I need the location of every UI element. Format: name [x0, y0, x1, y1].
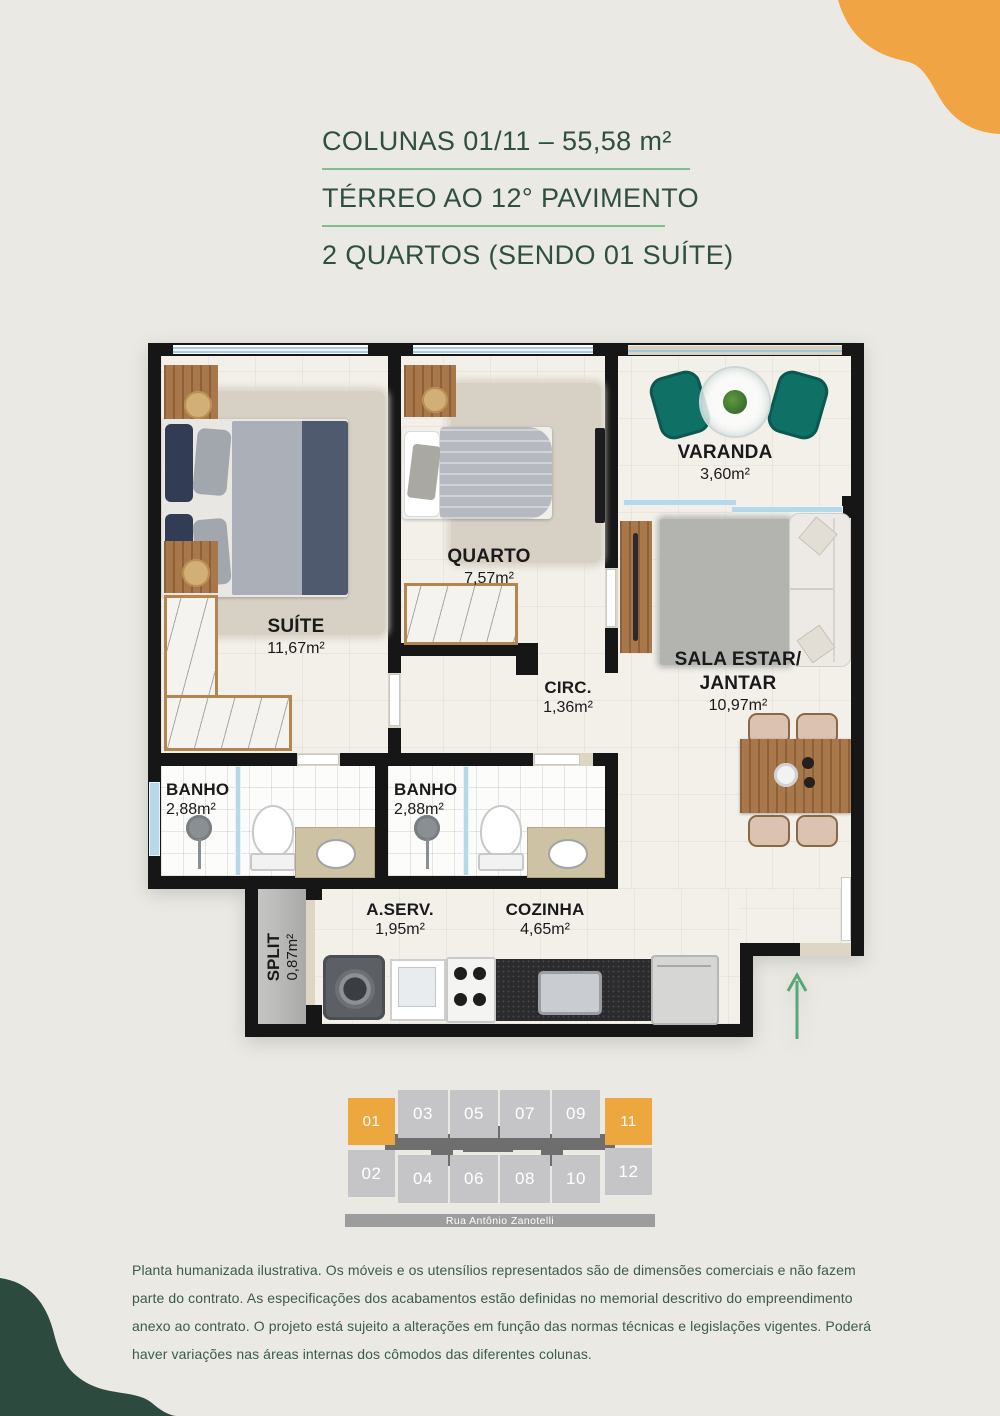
wall-entry-top [740, 943, 800, 956]
varanda-name: VARANDA [665, 441, 785, 465]
quarto-area: 7,57m² [429, 569, 549, 589]
kitchen-counter [496, 959, 652, 1021]
banho1-name: BANHO [166, 779, 262, 800]
suite-decor-tray-bottom [182, 559, 210, 587]
wall-suite-quarto [388, 356, 401, 673]
unit-05: 05 [450, 1090, 498, 1138]
door-leaf-banho2 [535, 755, 579, 764]
quarto-tv [595, 428, 605, 523]
unit-07-label: 07 [515, 1104, 535, 1124]
label-banho1: BANHO 2,88m² [166, 779, 262, 820]
wall-banho2-top-a [401, 753, 533, 766]
label-split: SPLIT 0,87m² [264, 912, 302, 1002]
flyer-page: { "colors": { "background": "#eae9e3", "… [0, 0, 1000, 1416]
unit-04-label: 04 [413, 1169, 433, 1189]
table-cup-1 [802, 757, 814, 769]
sala-sofa [789, 513, 851, 667]
banho2-sink [548, 839, 588, 869]
wall-quarto-right-top [605, 356, 618, 568]
entry-arrow-icon [785, 971, 809, 1041]
floorplan: SUÍTE 11,67m² QUARTO 7,57m² VARANDA 3,60… [148, 343, 864, 1037]
unit-12-label: 12 [619, 1162, 639, 1182]
sala-name-line2: JANTAR [668, 672, 808, 696]
wall-step-left [245, 889, 258, 1037]
label-aserv: A.SERV. 1,95m² [340, 899, 460, 940]
sala-name-line1: SALA ESTAR/ [668, 648, 808, 672]
unit-10: 10 [552, 1155, 600, 1203]
suite-decor-tray-top [184, 391, 212, 419]
split-area: 0,87m² [284, 912, 302, 1002]
street-bar: Rua Antônio Zanotelli [345, 1214, 655, 1227]
unit-07: 07 [500, 1090, 550, 1138]
sofa-pillow-top [798, 516, 837, 555]
unit-11: 11 [605, 1098, 652, 1145]
suite-pillow-navy-1 [165, 424, 193, 502]
sliding-door-leaf-right [732, 507, 842, 512]
window-suite [173, 345, 368, 354]
door-leaf-suite [390, 675, 399, 725]
quarto-name: QUARTO [429, 545, 549, 569]
door-leaf-quarto [607, 570, 615, 626]
cozinha-area: 4,65m² [485, 920, 605, 940]
varanda-rail [628, 345, 842, 355]
unit-03-label: 03 [413, 1104, 433, 1124]
dining-table [740, 739, 851, 813]
unit-10-label: 10 [566, 1169, 586, 1189]
unit-09: 09 [552, 1090, 600, 1138]
unit-06-label: 06 [464, 1169, 484, 1189]
split-name: SPLIT [264, 912, 284, 1002]
label-sala: SALA ESTAR/ JANTAR 10,97m² [668, 648, 808, 716]
aserv-name: A.SERV. [340, 899, 460, 920]
wall-split-tab-top [306, 876, 322, 900]
title-columns: COLUNAS 01/11 – 55,58 m² [322, 126, 690, 170]
banho2-toilet-tank [478, 853, 524, 871]
fridge-door-line [657, 965, 711, 967]
unit-06: 06 [450, 1155, 498, 1203]
label-varanda: VARANDA 3,60m² [665, 441, 785, 485]
wall-circ-corner [516, 643, 538, 675]
laundry-tank [390, 959, 446, 1021]
suite-blanket-dark [302, 421, 348, 595]
fridge [651, 955, 719, 1025]
table-plate [774, 763, 798, 787]
banho2-shower-stem [426, 839, 429, 869]
unit-01-label: 01 [363, 1113, 381, 1130]
sofa-back-line [833, 518, 835, 662]
label-cozinha: COZINHA 4,65m² [485, 899, 605, 940]
title-rooms: 2 QUARTOS (SENDO 01 SUÍTE) [322, 240, 692, 282]
quarto-decor-tray [422, 387, 448, 413]
legal-disclaimer: Planta humanizada ilustrativa. Os móveis… [132, 1256, 890, 1368]
dining-chair-4 [796, 815, 838, 847]
unit-08-label: 08 [515, 1169, 535, 1189]
wall-entry-stub [740, 943, 753, 1037]
varanda-plant [723, 390, 747, 414]
label-quarto: QUARTO 7,57m² [429, 545, 549, 589]
unit-04: 04 [398, 1155, 448, 1203]
unit-02: 02 [348, 1150, 395, 1197]
laundry-tank-basin [398, 967, 436, 1007]
wall-quarto-right-low [605, 628, 618, 673]
table-cup-2 [804, 777, 815, 788]
unit-03: 03 [398, 1090, 448, 1138]
unit-12: 12 [605, 1148, 652, 1195]
sala-tv [633, 533, 638, 641]
quarto-mattress [440, 427, 552, 519]
unit-09-label: 09 [566, 1104, 586, 1124]
suite-closet-vertical [164, 595, 218, 701]
burner-2 [473, 967, 486, 980]
suite-blanket-light [232, 421, 304, 595]
title-floors: TÉRREO AO 12° PAVIMENTO [322, 183, 665, 227]
suite-closet-horizontal [164, 695, 292, 751]
window-banho1 [150, 783, 159, 855]
cozinha-name: COZINHA [485, 899, 605, 920]
banho1-toilet-tank [250, 853, 296, 871]
suite-area: 11,67m² [236, 639, 356, 659]
door-leaf-banho1 [298, 755, 338, 764]
banho2-area: 2,88m² [394, 800, 490, 820]
burner-3 [454, 993, 467, 1006]
sliding-door-leaf-left [624, 500, 736, 505]
decorative-blob-orange [838, 0, 1000, 136]
window-quarto [413, 345, 593, 354]
circ-name: CIRC. [518, 677, 618, 698]
burner-4 [473, 993, 486, 1006]
sala-tv-panel [620, 521, 652, 653]
wall-banho-divider [375, 753, 388, 889]
wall-right [851, 343, 864, 956]
split-divider [306, 900, 315, 1005]
sala-rug [660, 519, 790, 665]
label-circ: CIRC. 1,36m² [518, 677, 618, 718]
banho1-sink [316, 839, 356, 869]
circ-area: 1,36m² [518, 698, 618, 718]
banho2-name: BANHO [394, 779, 490, 800]
sofa-seat-line [790, 588, 834, 590]
banho1-shower-stem [198, 839, 201, 869]
washer-drum [335, 969, 375, 1009]
unit-11-label: 11 [620, 1113, 637, 1130]
burner-1 [454, 967, 467, 980]
unit-02-label: 02 [362, 1164, 382, 1184]
suite-name: SUÍTE [236, 615, 356, 639]
varanda-area: 3,60m² [665, 465, 785, 485]
label-suite: SUÍTE 11,67m² [236, 615, 356, 659]
stove [446, 957, 496, 1023]
unit-01: 01 [348, 1098, 395, 1145]
unit-08: 08 [500, 1155, 550, 1203]
wall-suite-bottom-b [340, 753, 401, 766]
entry-opening [800, 943, 851, 956]
aserv-area: 1,95m² [340, 920, 460, 940]
label-banho2: BANHO 2,88m² [394, 779, 490, 820]
plan-header: COLUNAS 01/11 – 55,58 m² TÉRREO AO 12° P… [322, 126, 692, 282]
quarto-bed [402, 427, 552, 519]
door-leaf-entry [842, 878, 850, 940]
street-name: Rua Antônio Zanotelli [446, 1215, 554, 1227]
wall-split-tab-bottom [306, 1005, 322, 1024]
kitchen-sink [538, 971, 602, 1015]
suite-pillow-gray-1 [192, 428, 232, 497]
wall-banho2-right [605, 753, 618, 889]
washer [323, 955, 385, 1020]
wall-bottom [245, 1024, 753, 1037]
quarto-closet [404, 583, 518, 645]
unit-05-label: 05 [464, 1104, 484, 1124]
sala-area: 10,97m² [668, 696, 808, 716]
wall-suite-bottom-a [148, 753, 297, 766]
dining-chair-3 [748, 815, 790, 847]
banho1-area: 2,88m² [166, 800, 262, 820]
building-key: 01 03 05 07 09 11 02 04 06 08 10 12 Rua … [345, 1088, 655, 1233]
